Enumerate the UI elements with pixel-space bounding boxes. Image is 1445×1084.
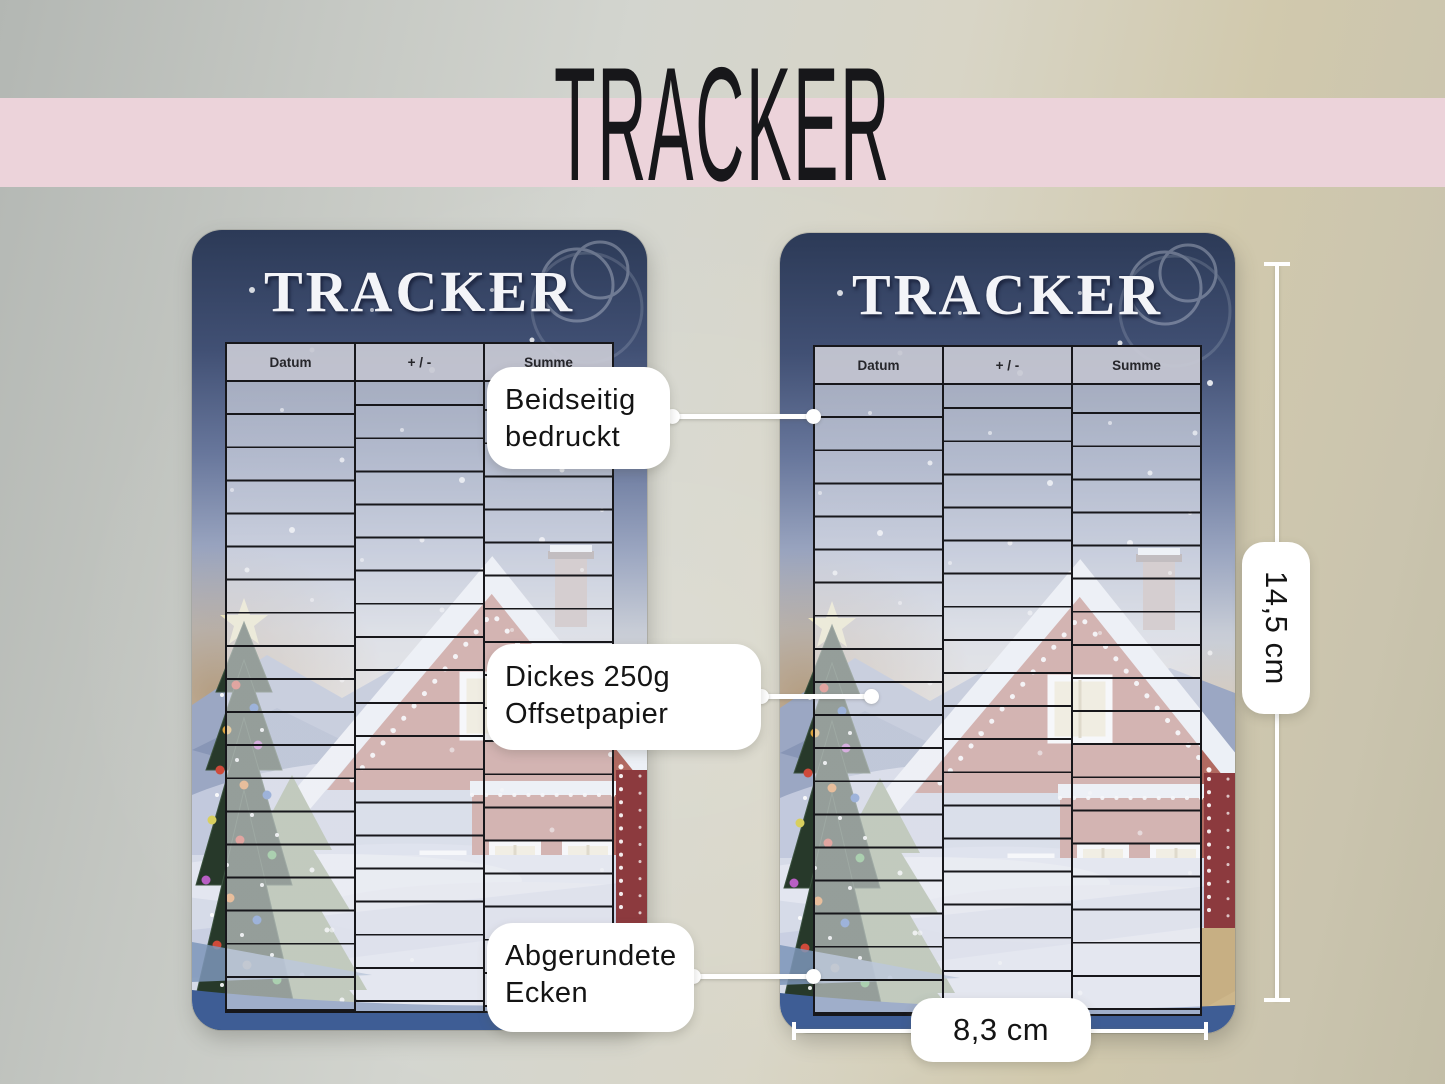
callout-line: Beidseitig	[505, 382, 652, 419]
callout-double-sided: Beidseitig bedruckt	[487, 367, 670, 469]
callout-line: Abgerundete	[505, 938, 676, 975]
connector-line-paper	[758, 694, 873, 699]
column-header-datum: Datum	[815, 347, 944, 383]
table-column-datum	[227, 382, 356, 1011]
product-photo-stage: TRACKER TRACKER Datum + / - Summe TRACKE…	[0, 0, 1445, 1084]
callout-line: bedruckt	[505, 419, 652, 456]
tracker-card-right: TRACKER Datum + / - Summe	[780, 233, 1235, 1033]
height-measure-cap-bottom	[1264, 998, 1290, 1002]
connector-line-double-sided	[670, 414, 816, 419]
table-header-row: Datum + / - Summe	[815, 347, 1200, 385]
width-measure-cap-left	[792, 1022, 796, 1040]
height-measure-cap-top	[1264, 262, 1290, 266]
connector-dot	[864, 689, 879, 704]
card-title: TRACKER	[192, 258, 647, 325]
column-header-plusminus: + / -	[356, 344, 485, 380]
callout-line: Ecken	[505, 975, 676, 1012]
callout-line: Dickes 250g	[505, 659, 743, 696]
width-measure-cap-right	[1204, 1022, 1208, 1040]
table-column-plusminus	[356, 382, 485, 1011]
tracker-table: Datum + / - Summe	[813, 345, 1202, 1016]
banner-title: TRACKER	[419, 44, 1026, 206]
column-header-datum: Datum	[227, 344, 356, 380]
table-column-datum	[815, 385, 944, 1014]
column-header-summe: Summe	[1073, 347, 1200, 383]
table-column-plusminus	[944, 385, 1073, 1014]
callout-corners: Abgerundete Ecken	[487, 923, 694, 1032]
width-measure-label: 8,3 cm	[911, 998, 1091, 1062]
connector-dot	[806, 409, 821, 424]
callout-paper: Dickes 250g Offsetpapier	[487, 644, 761, 750]
tracker-card-left: TRACKER Datum + / - Summe	[192, 230, 647, 1030]
card-title: TRACKER	[780, 261, 1235, 328]
connector-dot	[806, 969, 821, 984]
table-column-summe	[1073, 385, 1200, 1014]
column-header-plusminus: + / -	[944, 347, 1073, 383]
height-measure-label: 14,5 cm	[1242, 542, 1310, 714]
callout-line: Offsetpapier	[505, 696, 743, 733]
connector-line-corners	[690, 974, 815, 979]
